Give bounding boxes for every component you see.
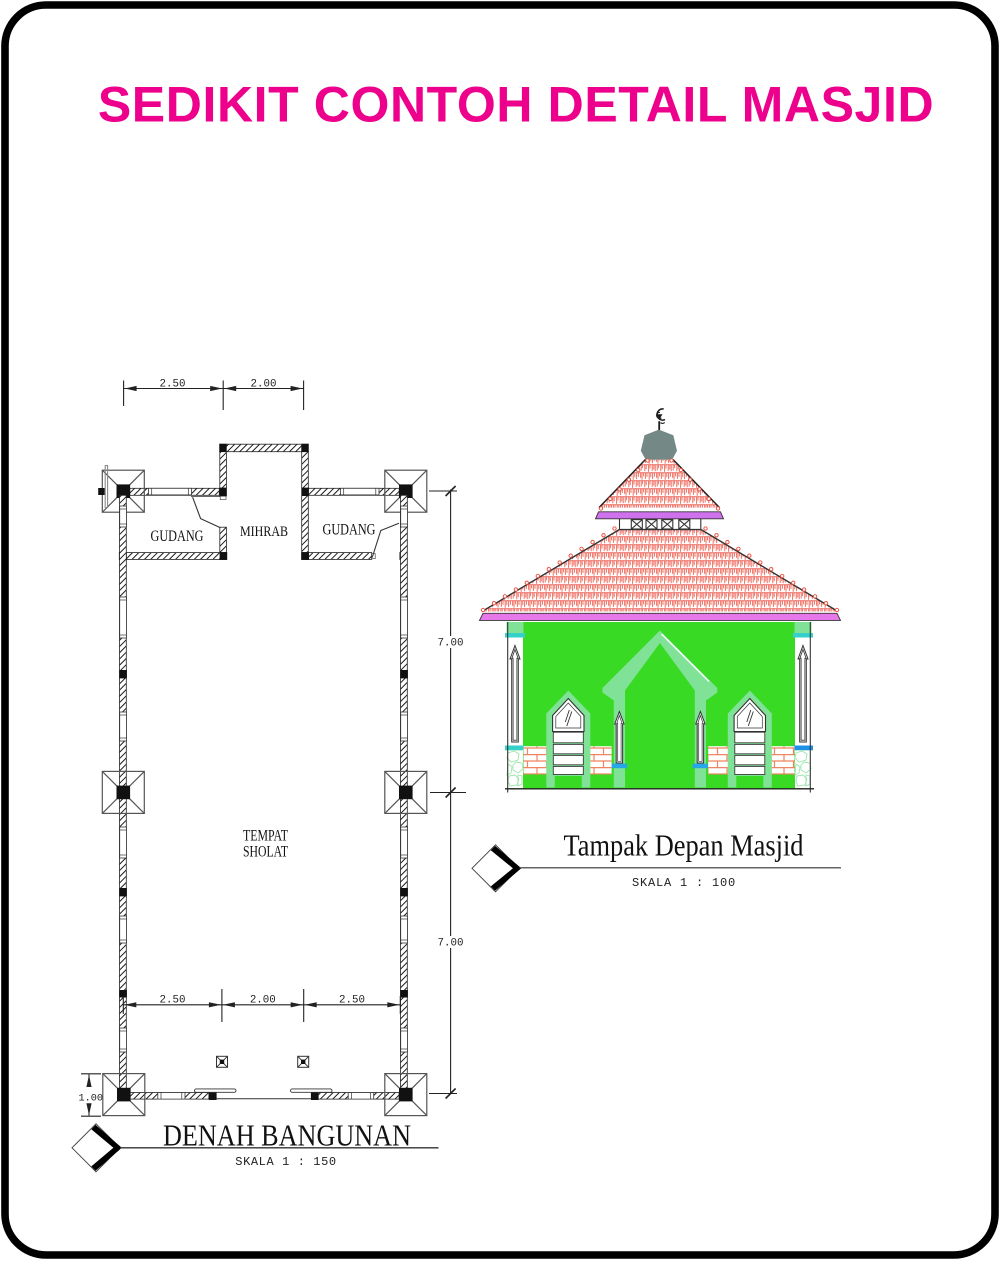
svg-text:TEMPAT: TEMPAT [243, 828, 288, 845]
svg-text:2.50: 2.50 [339, 995, 365, 1007]
svg-text:2.00: 2.00 [251, 379, 277, 391]
svg-text:MIHRAB: MIHRAB [240, 524, 288, 540]
svg-text:7.00: 7.00 [438, 938, 464, 950]
svg-text:SKALA 1 : 150: SKALA 1 : 150 [235, 1155, 336, 1169]
svg-text:SHOLAT: SHOLAT [243, 844, 288, 861]
svg-text:SKALA 1 : 100: SKALA 1 : 100 [632, 876, 736, 890]
svg-text:Tampak Depan Masjid: Tampak Depan Masjid [564, 829, 804, 863]
svg-text:2.50: 2.50 [160, 379, 186, 391]
svg-text:2.00: 2.00 [250, 995, 276, 1007]
svg-text:1.00: 1.00 [79, 1094, 103, 1105]
svg-text:GUDANG: GUDANG [323, 522, 376, 539]
svg-text:2.50: 2.50 [160, 995, 186, 1007]
svg-text:GUDANG: GUDANG [151, 528, 204, 545]
svg-text:7.00: 7.00 [438, 638, 464, 650]
svg-text:DENAH BANGUNAN: DENAH BANGUNAN [163, 1118, 411, 1153]
svg-text:SEDIKIT CONTOH DETAIL MASJID: SEDIKIT CONTOH DETAIL MASJID [98, 77, 934, 133]
